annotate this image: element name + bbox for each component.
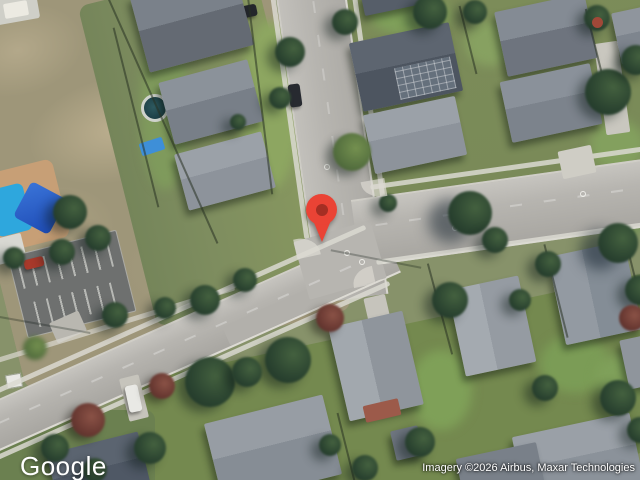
tree-over-road <box>448 191 492 235</box>
red-shrub <box>592 17 603 28</box>
tree <box>319 434 341 456</box>
tree <box>265 337 311 383</box>
tree <box>432 282 468 318</box>
tree <box>230 114 246 130</box>
tree <box>102 302 128 328</box>
tree <box>85 225 111 251</box>
tree <box>532 375 558 401</box>
tree <box>275 37 305 67</box>
tree <box>154 297 176 319</box>
map-pin-icon[interactable] <box>304 194 340 250</box>
tree <box>134 432 166 464</box>
tree <box>233 268 257 292</box>
tree <box>333 133 371 171</box>
google-logo[interactable]: Google <box>20 451 107 480</box>
manhole <box>359 259 365 265</box>
manhole <box>324 164 330 170</box>
tree <box>600 380 636 416</box>
tree-over-road <box>598 223 638 263</box>
tree <box>463 0 487 24</box>
manhole <box>580 191 586 197</box>
tree <box>23 336 47 360</box>
red-tree <box>619 305 640 331</box>
tree <box>509 289 531 311</box>
tree <box>405 427 435 457</box>
pin-inner-dot <box>316 204 328 216</box>
tree <box>185 357 235 407</box>
tree <box>269 87 291 109</box>
solar-panels <box>394 56 457 99</box>
satellite-map[interactable]: Google Imagery ©2026 Airbus, Maxar Techn… <box>0 0 640 480</box>
tree <box>352 455 378 480</box>
red-tree <box>149 373 175 399</box>
red-tree <box>71 403 105 437</box>
tree <box>190 285 220 315</box>
red-tree <box>316 304 344 332</box>
tree <box>232 357 262 387</box>
tree <box>53 195 87 229</box>
tree <box>49 239 75 265</box>
tree <box>332 9 358 35</box>
tree <box>535 251 561 277</box>
imagery-attribution: Imagery ©2026 Airbus, Maxar Technologies <box>422 462 635 474</box>
tree <box>585 69 631 115</box>
tree <box>3 247 25 269</box>
tree <box>482 227 508 253</box>
